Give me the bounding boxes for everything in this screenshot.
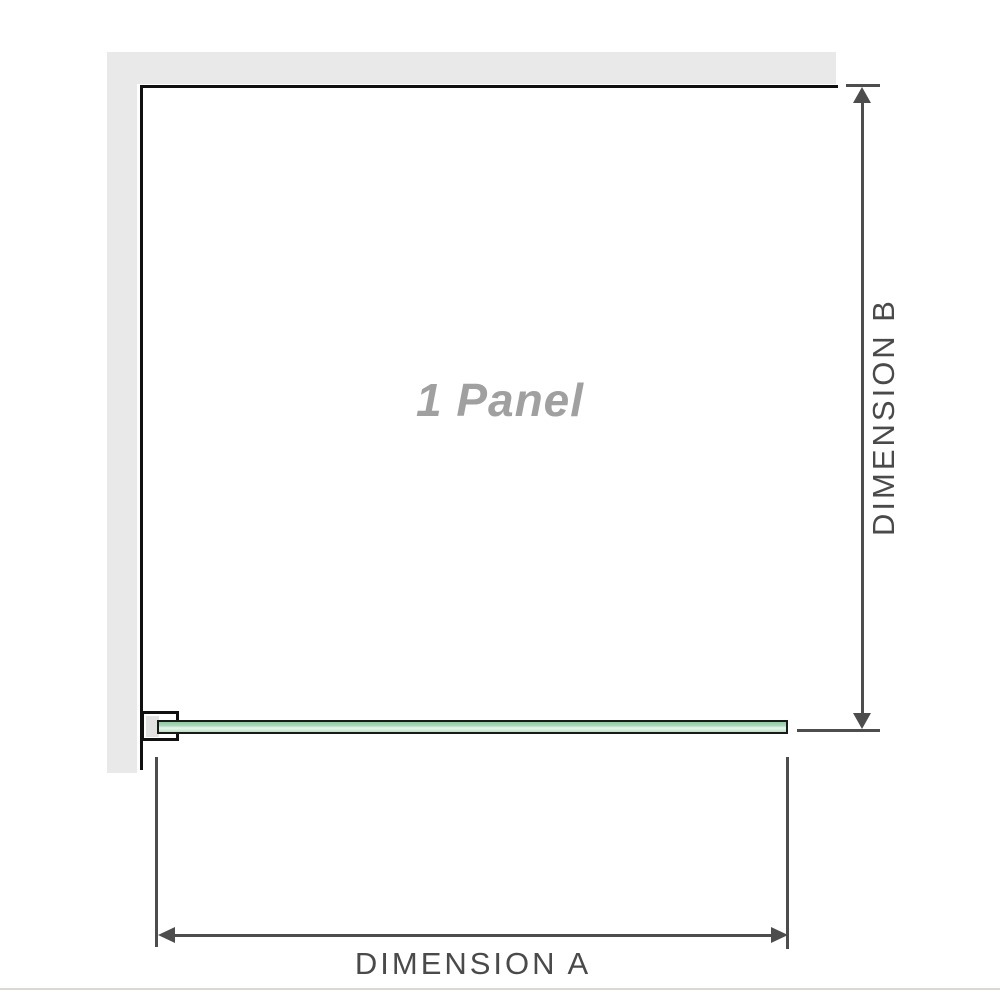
page-baseline-divider xyxy=(0,988,1000,990)
arrow-left-icon xyxy=(158,927,175,943)
panel-outline-left xyxy=(140,85,143,770)
dimension-b-label: DIMENSION B xyxy=(866,298,902,536)
glass-panel xyxy=(157,720,788,734)
dimension-a-label: DIMENSION A xyxy=(355,946,591,982)
dimension-a-left-extension xyxy=(155,757,158,947)
dimension-b-line xyxy=(861,96,864,720)
wall-top-strip xyxy=(107,52,836,84)
arrow-right-icon xyxy=(771,927,788,943)
diagram-canvas: 1 Panel DIMENSION B DIMENSION A xyxy=(0,0,1000,1000)
panel-outline-top xyxy=(140,85,838,88)
arrow-up-icon xyxy=(853,87,871,103)
arrow-down-icon xyxy=(853,713,871,729)
panel-count-label: 1 Panel xyxy=(416,373,584,427)
dimension-a-right-extension xyxy=(786,757,789,949)
dimension-a-line xyxy=(170,934,776,937)
wall-left-strip xyxy=(107,52,137,773)
dimension-b-bottom-tick xyxy=(797,729,880,732)
